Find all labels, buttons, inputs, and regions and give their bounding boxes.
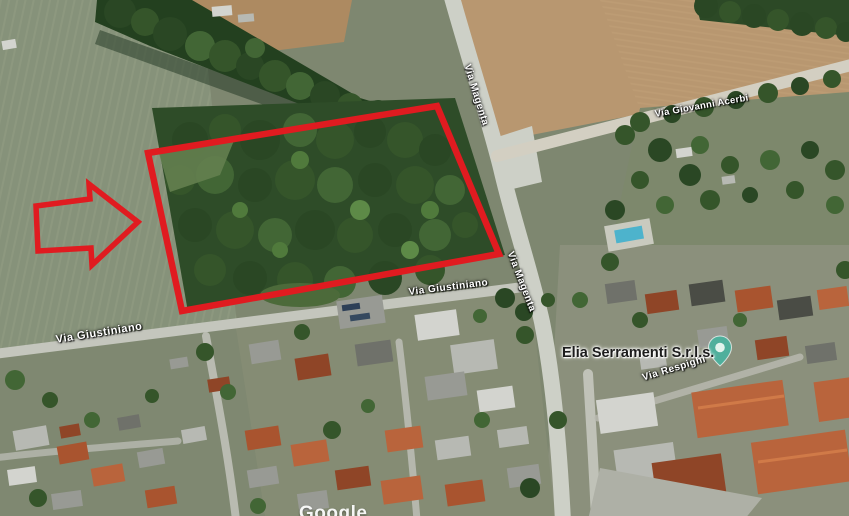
google-watermark: Google (299, 503, 367, 516)
satellite-map[interactable]: Via Magenta Via Giovanni Acerbi Via Mage… (0, 0, 849, 516)
pin-center-dot (715, 343, 725, 353)
map-imagery (0, 0, 849, 516)
business-label[interactable]: Elia Serramenti S.r.l.s. (562, 345, 714, 361)
